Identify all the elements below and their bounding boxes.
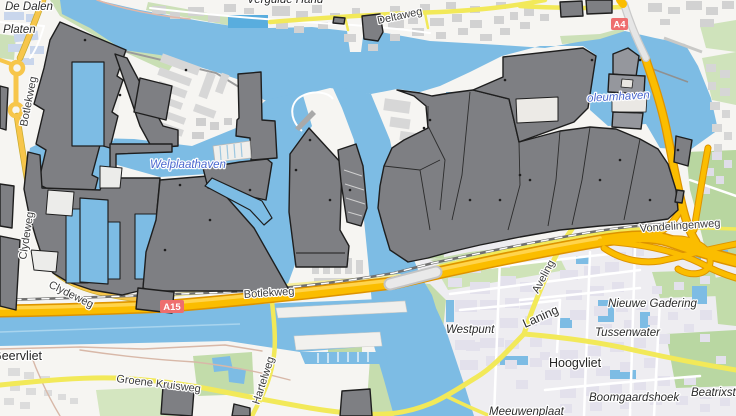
- svg-text:Westpunt: Westpunt: [446, 324, 495, 336]
- svg-text:A4: A4: [613, 20, 626, 31]
- svg-text:Meeuwenplaat: Meeuwenplaat: [489, 406, 565, 416]
- svg-text:De Dalen: De Dalen: [5, 1, 53, 13]
- svg-text:Tussenwater: Tussenwater: [595, 327, 661, 339]
- svg-text:Hoogvliet: Hoogvliet: [549, 356, 602, 370]
- svg-text:A15: A15: [163, 302, 181, 313]
- svg-text:Geervliet: Geervliet: [0, 349, 43, 363]
- svg-text:Boomgaardshoek: Boomgaardshoek: [589, 392, 680, 404]
- svg-text:Nieuwe Gadering: Nieuwe Gadering: [608, 298, 697, 310]
- svg-text:Beatrixst: Beatrixst: [691, 387, 736, 399]
- svg-text:Welplaathaven: Welplaathaven: [150, 159, 226, 171]
- svg-text:Platen: Platen: [3, 24, 36, 36]
- svg-text:Vergulde Hand: Vergulde Hand: [247, 0, 324, 6]
